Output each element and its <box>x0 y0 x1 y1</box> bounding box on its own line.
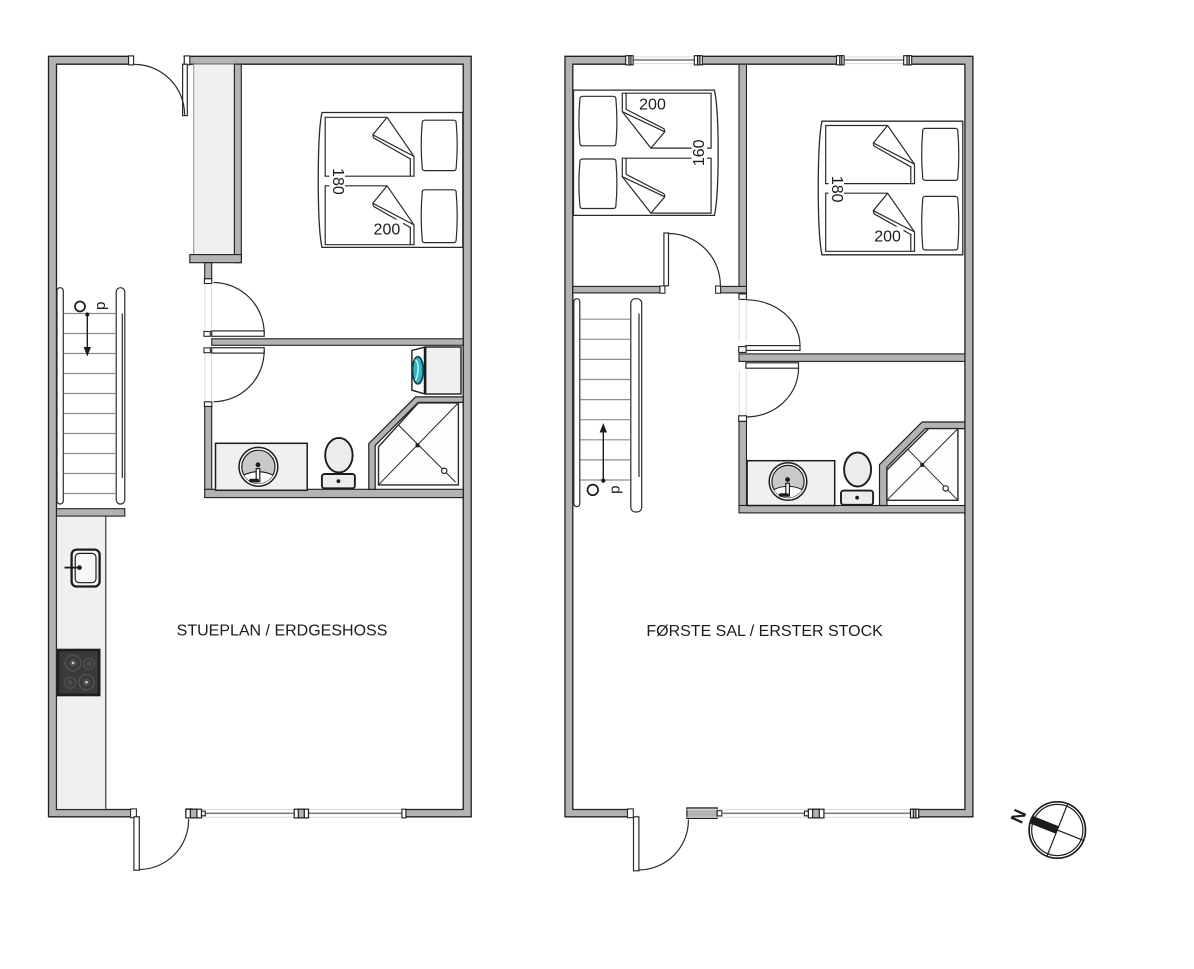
svg-text:200: 200 <box>374 221 401 238</box>
svg-text:p: p <box>607 486 624 494</box>
svg-text:p: p <box>92 302 109 310</box>
svg-text:180: 180 <box>329 168 346 195</box>
svg-text:N: N <box>1007 806 1031 826</box>
svg-text:200: 200 <box>639 96 666 113</box>
svg-text:160: 160 <box>691 139 708 166</box>
svg-text:STUEPLAN / ERDGESHOSS: STUEPLAN / ERDGESHOSS <box>177 623 388 640</box>
svg-text:FØRSTE SAL / ERSTER STOCK: FØRSTE SAL / ERSTER STOCK <box>646 623 883 640</box>
svg-text:180: 180 <box>828 176 845 203</box>
svg-text:200: 200 <box>874 228 901 245</box>
